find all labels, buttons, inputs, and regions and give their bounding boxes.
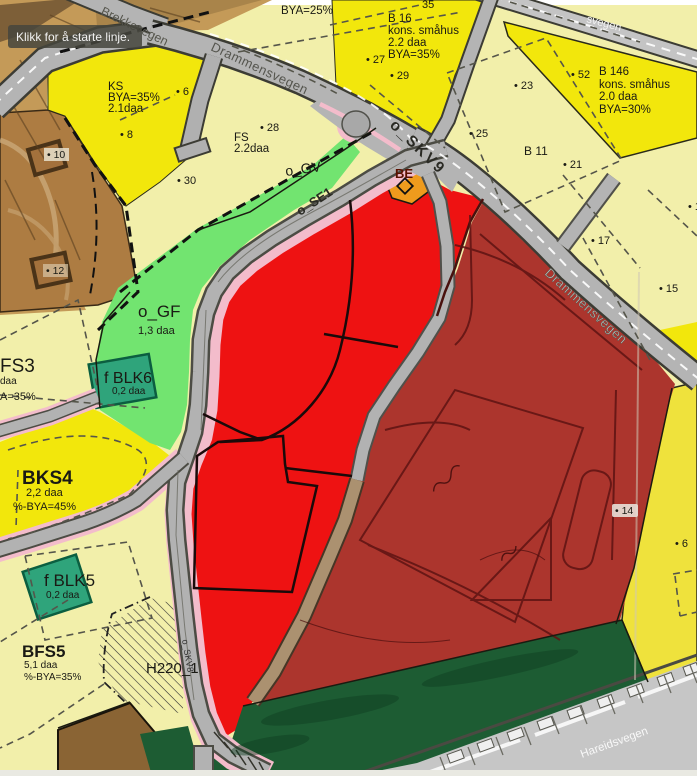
svg-text:BYA=35%: BYA=35% (388, 49, 440, 61)
svg-text:BFS5: BFS5 (22, 642, 65, 661)
svg-text:• 23: • 23 (514, 80, 533, 92)
svg-text:2.1daa: 2.1daa (108, 103, 144, 115)
svg-text:BYA=30%: BYA=30% (599, 104, 651, 116)
svg-text:BKS4: BKS4 (22, 468, 73, 489)
svg-text:• 30: • 30 (177, 175, 196, 187)
svg-text:%-BYA=35%: %-BYA=35% (24, 672, 81, 683)
svg-text:5,1 daa: 5,1 daa (24, 660, 58, 671)
svg-text:B 16: B 16 (388, 13, 412, 25)
svg-text:f BLK6: f BLK6 (104, 370, 152, 387)
svg-text:daa: daa (0, 376, 17, 387)
svg-text:35: 35 (422, 0, 434, 11)
svg-text:• 25: • 25 (469, 128, 488, 140)
svg-text:• 8: • 8 (120, 129, 133, 141)
svg-text:• 28: • 28 (260, 122, 279, 134)
svg-text:BE: BE (395, 166, 413, 181)
svg-text:BYA=25%: BYA=25% (281, 5, 333, 17)
svg-text:kons. småhus: kons. småhus (388, 25, 459, 37)
svg-text:• 12: • 12 (46, 265, 64, 277)
svg-text:f BLK5: f BLK5 (44, 571, 95, 590)
svg-text:%-BYA=45%: %-BYA=45% (13, 501, 76, 513)
svg-text:A=35%: A=35% (0, 391, 36, 403)
svg-text:• 17: • 17 (591, 235, 610, 247)
svg-text:kons. småhus: kons. småhus (599, 79, 670, 91)
svg-text:FS3: FS3 (0, 356, 35, 377)
svg-text:2.0 daa: 2.0 daa (599, 91, 638, 103)
svg-text:2,2 daa: 2,2 daa (26, 487, 64, 499)
svg-text:• 6: • 6 (176, 86, 189, 98)
svg-text:• 27: • 27 (366, 54, 385, 66)
svg-text:• 15: • 15 (659, 283, 678, 295)
svg-text:0,2 daa: 0,2 daa (112, 386, 146, 397)
svg-text:• 6: • 6 (675, 538, 688, 550)
svg-text:H220_1: H220_1 (146, 660, 199, 677)
svg-text:1,3 daa: 1,3 daa (138, 325, 176, 337)
svg-text:Klikk for å starte linje.: Klikk for å starte linje. (16, 30, 130, 44)
svg-text:• 10: • 10 (47, 149, 65, 161)
svg-text:• 52: • 52 (571, 69, 590, 81)
svg-text:2.2daa: 2.2daa (234, 143, 270, 155)
svg-text:2.2 daa: 2.2 daa (388, 37, 427, 49)
svg-text:• 29: • 29 (390, 70, 409, 82)
svg-text:• 14: • 14 (615, 505, 633, 517)
svg-text:B 146: B 146 (599, 66, 629, 78)
svg-text:0,2 daa: 0,2 daa (46, 590, 80, 601)
svg-text:• 21: • 21 (563, 159, 582, 171)
svg-text:• 1: • 1 (688, 201, 697, 213)
svg-text:B 11: B 11 (524, 144, 548, 158)
svg-text:o_GF: o_GF (138, 302, 181, 321)
